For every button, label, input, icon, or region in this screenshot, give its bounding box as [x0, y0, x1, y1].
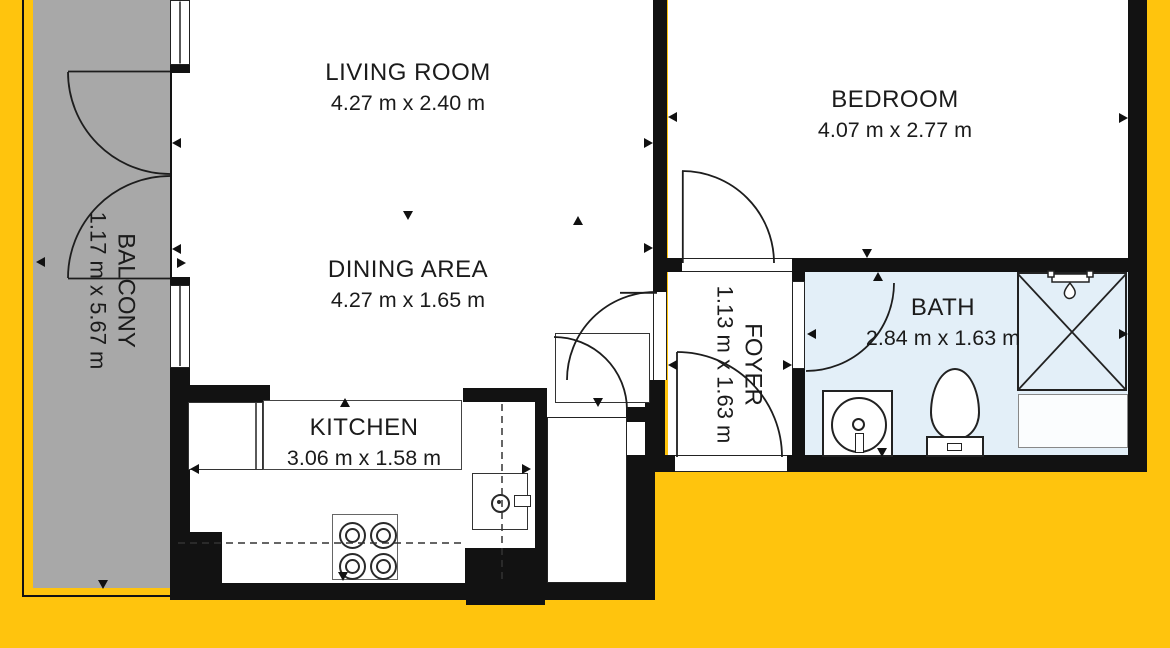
wall-kitchen-top-left — [188, 385, 270, 402]
wall-vestibule-stub — [626, 407, 648, 422]
burner-ring-icon — [376, 528, 391, 543]
burner-ring-icon — [345, 528, 360, 543]
washing-machine — [822, 390, 893, 457]
entrance-door-threshold — [675, 455, 787, 472]
wall-nook-right — [627, 455, 655, 600]
toilet-button-icon — [947, 443, 962, 451]
kitchen-sink — [472, 473, 528, 530]
wall-kitchen-bottom-left-chunk — [170, 532, 222, 600]
shower-enclosure — [1017, 272, 1127, 391]
window-balcony-lower — [170, 285, 190, 368]
kitchen-counter — [263, 400, 462, 470]
vestibule-door-threshold — [653, 292, 667, 380]
wall-window-divider-b — [170, 277, 190, 285]
washer-detergent-icon — [855, 433, 864, 453]
stove — [332, 514, 398, 580]
wall-kitchen-right-vertical — [535, 400, 547, 553]
wall-living-bedroom — [653, 0, 667, 292]
toilet-tank — [926, 436, 984, 457]
sink-tap-icon — [514, 495, 531, 507]
sink-drain-icon — [491, 494, 510, 513]
wall-kitchen-right-chunk — [465, 548, 547, 583]
wall-right-exterior — [1128, 0, 1147, 472]
washer-dot-icon — [852, 418, 865, 431]
balcony-floor — [33, 0, 170, 588]
window-balcony-upper — [170, 0, 190, 65]
wall-window-divider-a — [170, 65, 190, 73]
kitchen-cabinet — [188, 402, 263, 470]
wall-kitchen-bottom — [188, 583, 647, 600]
hall-nook — [547, 417, 627, 583]
burner-ring-icon — [345, 559, 360, 574]
bath-vanity — [1018, 394, 1128, 448]
burner-ring-icon — [376, 559, 391, 574]
bath-door-slab — [792, 281, 805, 369]
wardrobe-closet — [555, 333, 650, 403]
sink-drain-dot-icon — [497, 500, 501, 504]
wall-kitchen-bottom-notch — [466, 583, 545, 605]
floor-plan: LIVING ROOM 4.27 m x 2.40 m DINING AREA … — [0, 0, 1170, 648]
bedroom-door-threshold — [682, 258, 792, 272]
